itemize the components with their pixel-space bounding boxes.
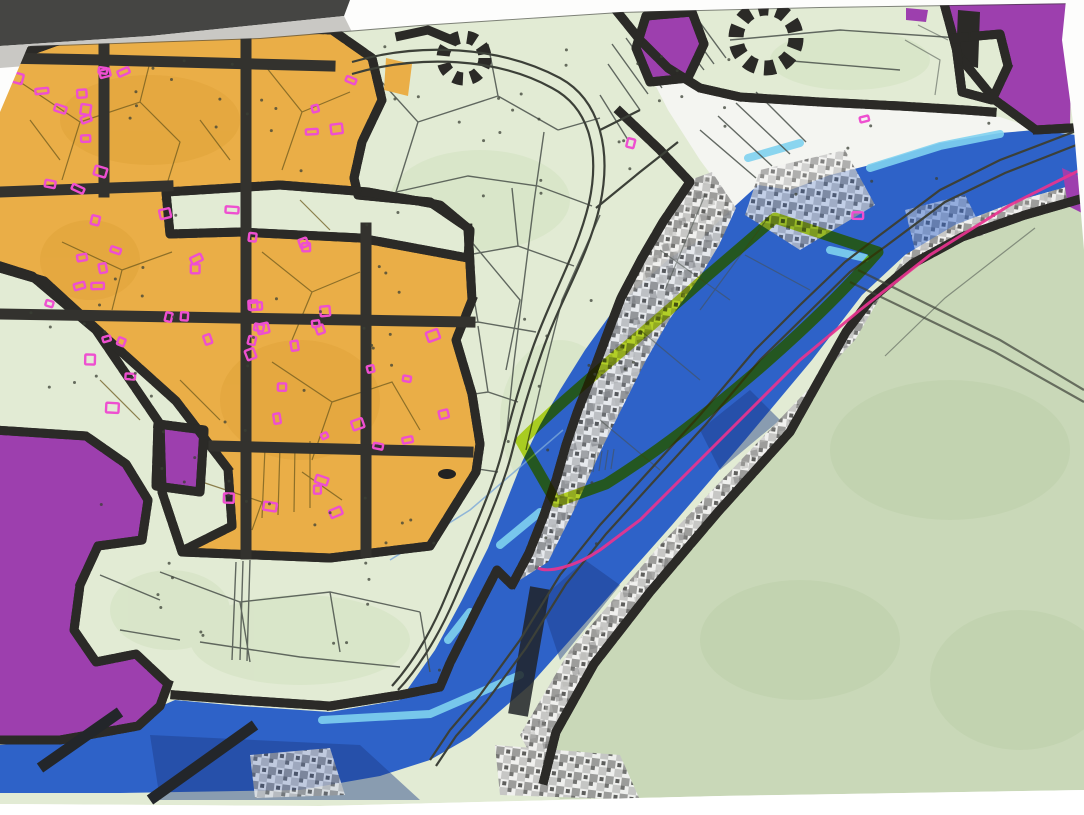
parcel-number-speck	[624, 368, 627, 371]
parcel-number-speck	[511, 109, 514, 112]
parcel-number-speck	[183, 59, 186, 62]
parcel-number-speck	[727, 58, 730, 61]
parcel-number-speck	[587, 364, 590, 367]
parcel-number-speck	[396, 211, 399, 214]
parcel-number-speck	[401, 522, 404, 525]
parcel-number-speck	[846, 147, 849, 150]
parcel-number-speck	[319, 310, 322, 313]
parcel-number-speck	[274, 107, 277, 110]
parcel-number-speck	[544, 536, 547, 539]
parcel-number-speck	[498, 131, 501, 134]
parcel-number-speck	[134, 90, 137, 93]
parcel-number-speck	[389, 333, 392, 336]
road-h3	[214, 446, 468, 452]
parcel-number-speck	[141, 294, 144, 297]
parcel-number-speck	[507, 440, 510, 443]
parcel-number-speck	[171, 576, 174, 579]
parcel-number-speck	[590, 299, 593, 302]
parcel-number-speck	[935, 177, 938, 180]
parcel-number-speck	[218, 98, 221, 101]
parcel-number-speck	[482, 194, 485, 197]
parcel-number-speck	[49, 326, 52, 329]
parcel-number-speck	[537, 118, 540, 121]
zoning-map-svg	[0, 0, 1084, 815]
parcel-number-speck	[159, 606, 162, 609]
parcel-number-speck	[183, 481, 186, 484]
parcel-number-speck	[156, 593, 159, 596]
parcel-number-speck	[365, 223, 368, 226]
parcel-number-speck	[538, 385, 541, 388]
parcel-number-speck	[30, 311, 33, 314]
parcel-number-speck	[987, 122, 990, 125]
parcel-number-speck	[215, 125, 218, 128]
parcel-number-speck	[252, 336, 255, 339]
parcel-number-speck	[170, 78, 173, 81]
parcel-number-speck	[174, 214, 177, 217]
parcel-number-speck	[384, 541, 387, 544]
parcel-number-speck	[364, 562, 367, 565]
parcel-number-speck	[201, 634, 204, 637]
parcel-number-speck	[565, 64, 568, 67]
parcel-number-speck	[345, 641, 348, 644]
parcel-number-speck	[398, 291, 401, 294]
parcel-number-speck	[658, 99, 661, 102]
parcel-number-speck	[539, 179, 542, 182]
parcel-number-speck	[372, 347, 375, 350]
parcel-number-speck	[565, 48, 568, 51]
parcel-number-speck	[270, 129, 273, 132]
parcel-number-speck	[303, 389, 306, 392]
parcel-number-speck	[329, 511, 332, 514]
parcel-number-speck	[367, 578, 370, 581]
parcel-number-speck	[390, 364, 393, 367]
parcel-number-speck	[332, 642, 335, 645]
parcel-number-speck	[172, 316, 175, 319]
parcel-number-speck	[313, 523, 316, 526]
parcel-number-speck	[260, 99, 263, 102]
parcel-number-speck	[141, 266, 144, 269]
parcel-number-speck	[417, 95, 420, 98]
parcel-number-speck	[364, 497, 367, 500]
parcel-number-speck	[794, 193, 797, 196]
parcel-number-speck	[632, 361, 635, 364]
parcel-number-speck	[244, 429, 247, 432]
parcel-number-speck	[160, 467, 163, 470]
parcel-number-speck	[162, 430, 165, 433]
parcel-number-speck	[383, 45, 386, 48]
parcel-number-speck	[246, 112, 249, 115]
parcel-number-speck	[363, 327, 366, 330]
parcel-number-speck	[523, 318, 526, 321]
parcel-number-speck	[98, 304, 101, 307]
parcel-number-speck	[275, 297, 278, 300]
parcel-number-speck	[680, 95, 683, 98]
parcel-number-speck	[593, 373, 596, 376]
parcel-number-speck	[497, 97, 500, 100]
parcel-number-speck	[546, 449, 549, 452]
parcel-number-speck	[100, 503, 103, 506]
parcel-number-speck	[95, 375, 98, 378]
parcel-number-speck	[636, 62, 639, 65]
photo-of-zoning-map	[0, 0, 1084, 815]
parcel-number-speck	[135, 104, 138, 107]
parcel-number-speck	[628, 167, 631, 170]
parcel-number-speck	[660, 55, 663, 58]
parcel-number-speck	[199, 630, 202, 633]
parcel-number-speck	[393, 97, 396, 100]
parcel-number-speck	[482, 139, 485, 142]
parcel-number-speck	[224, 421, 227, 424]
parcel-number-speck	[168, 562, 171, 565]
parcel-number-speck	[114, 277, 117, 280]
parcel-number-speck	[103, 330, 106, 333]
parcel-number-speck	[268, 502, 271, 505]
parcel-number-speck	[458, 121, 461, 124]
parcel-number-speck	[150, 395, 153, 398]
parcel-number-speck	[246, 364, 249, 367]
parcel-number-speck	[545, 335, 548, 338]
parcel-number-speck	[438, 669, 441, 672]
parcel-number-speck	[618, 140, 621, 143]
parcel-number-speck	[231, 63, 234, 66]
parcel-number-speck	[870, 180, 873, 183]
parcel-number-speck	[370, 344, 373, 347]
parcel-number-speck	[83, 322, 86, 325]
parcel-number-speck	[869, 124, 872, 127]
parcel-number-speck	[245, 500, 248, 503]
parcel-number-speck	[227, 494, 230, 497]
parcel-number-speck	[723, 125, 726, 128]
parcel-number-speck	[590, 481, 593, 484]
parcel-number-speck	[622, 139, 625, 142]
parcel-number-speck	[151, 67, 154, 70]
parcel-number-speck	[366, 603, 369, 606]
parcel-number-speck	[723, 106, 726, 109]
map-content	[0, 0, 1084, 815]
parcel-number-speck	[130, 376, 133, 379]
parcel-number-speck	[193, 456, 196, 459]
small-black-blob	[438, 469, 456, 479]
parcel-number-speck	[228, 480, 231, 483]
parcel-number-speck	[409, 518, 412, 521]
parcel-number-speck	[676, 69, 679, 72]
parcel-number-speck	[129, 117, 132, 120]
parcel-number-speck	[432, 542, 435, 545]
parcel-number-speck	[378, 265, 381, 268]
parcel-number-speck	[48, 386, 51, 389]
parcel-number-speck	[595, 542, 598, 545]
parcel-number-speck	[134, 372, 137, 375]
parcel-number-speck	[384, 271, 387, 274]
parcel-number-speck	[73, 381, 76, 384]
purple-tiny-blob	[906, 8, 928, 22]
parcel-number-speck	[539, 192, 542, 195]
parcel-number-speck	[300, 169, 303, 172]
parcel-number-speck	[520, 93, 523, 96]
